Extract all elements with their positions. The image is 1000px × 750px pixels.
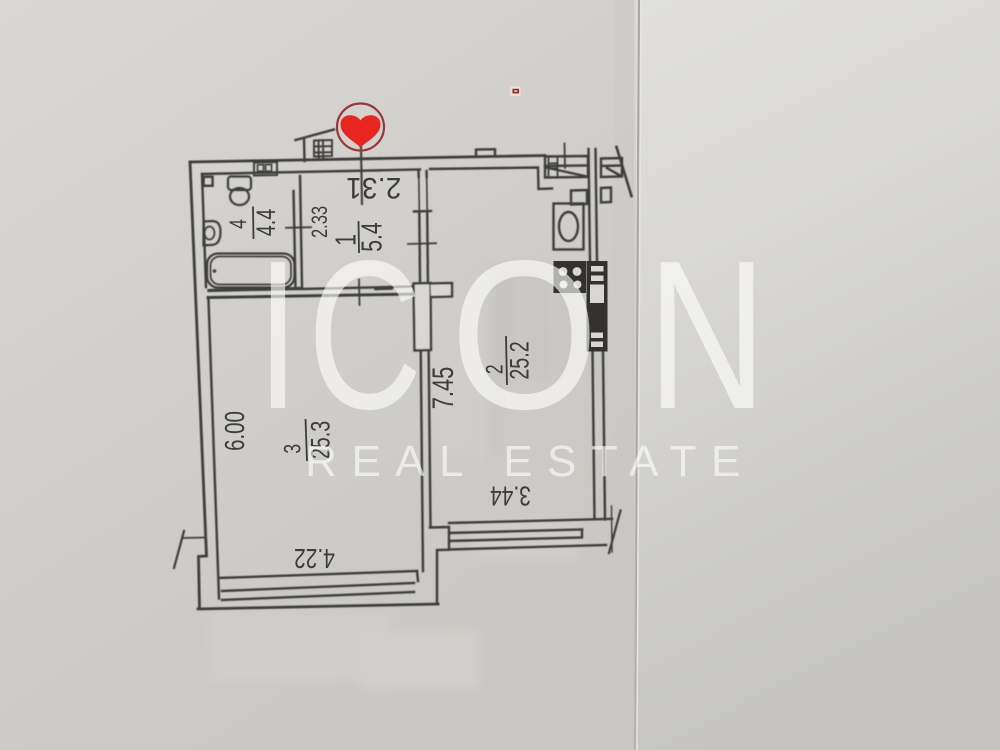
svg-text:4.22: 4.22	[294, 542, 335, 573]
svg-text:REAL ESTATE: REAL ESTATE	[305, 437, 755, 486]
svg-text:N: N	[647, 217, 766, 453]
svg-text:4: 4	[225, 219, 251, 229]
svg-text:6.00: 6.00	[220, 411, 251, 451]
svg-text:O: O	[450, 216, 598, 454]
svg-text:C: C	[308, 216, 423, 454]
svg-text:2.31: 2.31	[346, 171, 402, 204]
svg-text:I: I	[257, 217, 299, 453]
